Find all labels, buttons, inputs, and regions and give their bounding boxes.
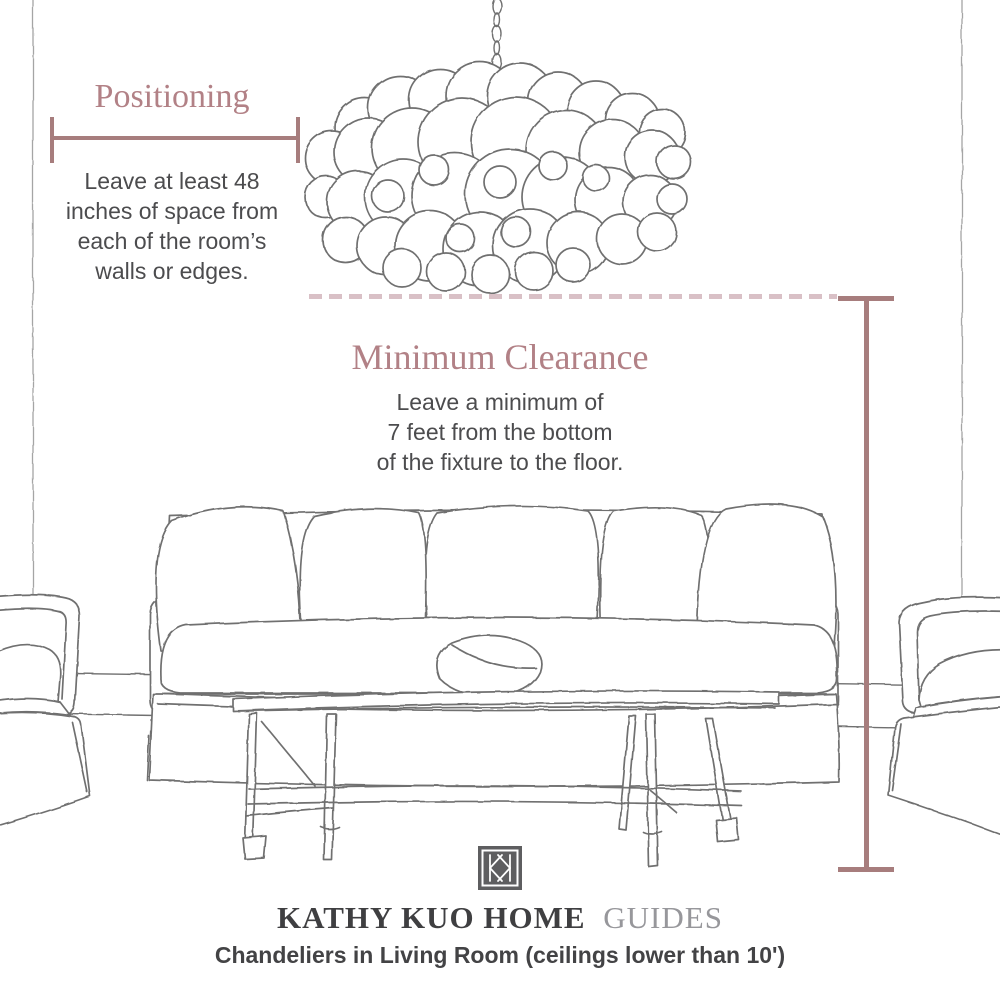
armchair-left-illustration [0, 595, 90, 828]
chandelier-bubbles [305, 62, 691, 293]
positioning-measure-bracket [50, 117, 300, 163]
kathy-kuo-monogram-icon [478, 846, 522, 890]
armchair-right-illustration [888, 597, 1000, 838]
clearance-heading: Minimum Clearance [290, 336, 710, 378]
positioning-heading: Positioning [22, 78, 322, 116]
brand-name: KATHY KUO HOME [277, 900, 586, 935]
positioning-description: Leave at least 48 inches of space from e… [22, 166, 322, 286]
clearance-measure-bottom-cap [838, 867, 894, 872]
brand-guides-label: GUIDES [603, 900, 723, 935]
infographic-caption: Chandeliers in Living Room (ceilings low… [0, 942, 1000, 969]
clearance-measure-line [864, 296, 869, 872]
brand-wordmark: KATHY KUO HOME GUIDES [0, 900, 1000, 936]
clearance-measure-top-cap [838, 296, 894, 301]
chandelier-illustration [305, 0, 691, 293]
kathy-kuo-logo [478, 846, 522, 890]
clearance-description: Leave a minimum of 7 feet from the botto… [300, 387, 700, 477]
positioning-measure-line [54, 136, 296, 140]
ceiling-clearance-dashed-line [309, 294, 837, 299]
chandelier-clearance-infographic: Positioning Leave at least 48 inches of … [0, 0, 1000, 1000]
